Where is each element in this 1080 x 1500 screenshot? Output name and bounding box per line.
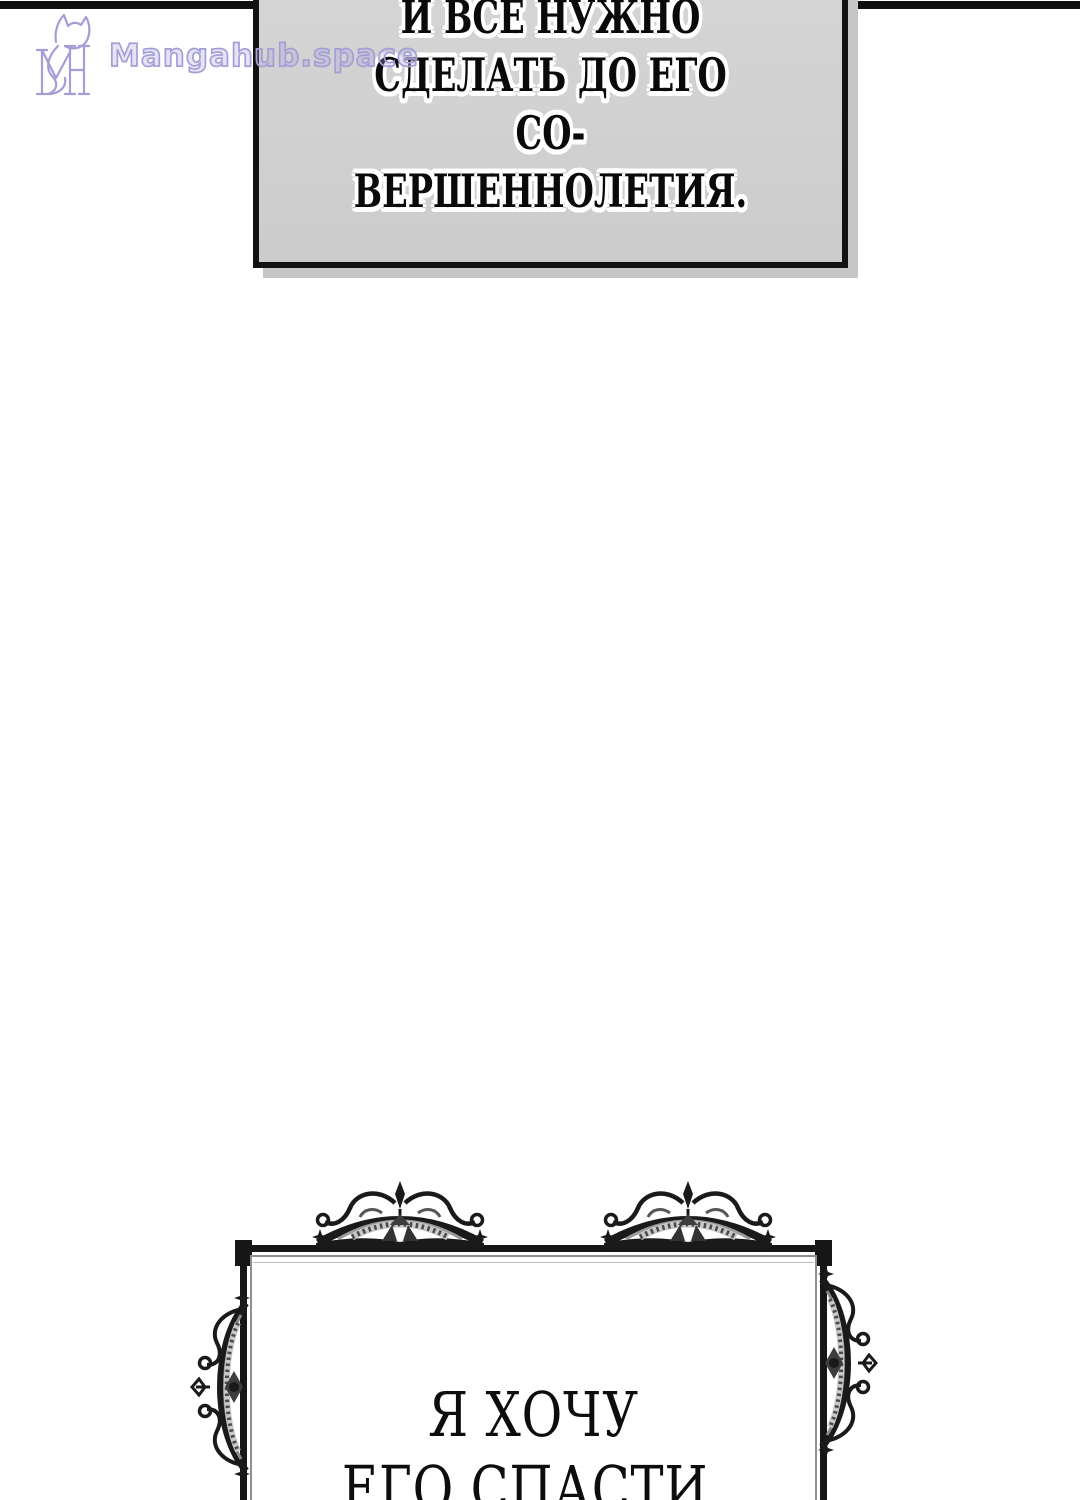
narration-line: ВЕРШЕННОЛЕТИЯ.: [338, 162, 764, 220]
caption-line: ЕГО СПАСТИ,: [304, 1452, 762, 1500]
caption-line: Я ХОЧУ: [304, 1378, 762, 1452]
manga-page: И ВСЕ НУЖНО СДЕЛАТЬ ДО ЕГО СО- ВЕРШЕННОЛ…: [0, 0, 1080, 1500]
frame-corner-cap-right: [815, 1240, 832, 1266]
frame-crown-ornament-right-icon: [596, 1181, 780, 1249]
frame-scroll-ornament-right-icon: [814, 1267, 882, 1457]
caption-text: Я ХОЧУ ЕГО СПАСТИ,: [304, 1378, 762, 1500]
frame-scroll-ornament-left-icon: [186, 1291, 254, 1481]
mangahub-fox-monogram-icon: [34, 12, 100, 100]
caption-frame: Я ХОЧУ ЕГО СПАСТИ,: [240, 1245, 827, 1500]
frame-crown-ornament-left-icon: [308, 1181, 492, 1249]
site-watermark: Mangahub.space: [34, 10, 419, 102]
watermark-site-name: Mangahub.space: [109, 38, 419, 74]
